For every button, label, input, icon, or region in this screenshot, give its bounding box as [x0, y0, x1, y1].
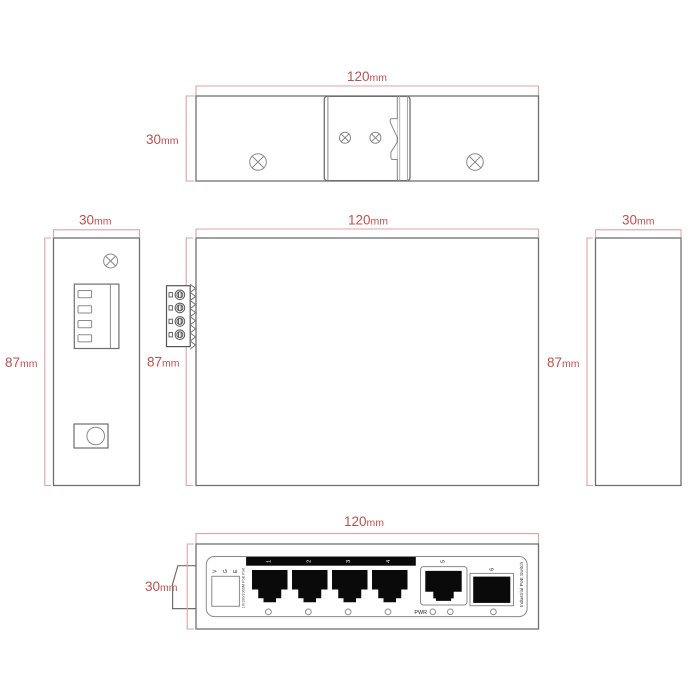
svg-text:30mm: 30mm [622, 213, 655, 228]
svg-text:6: 6 [490, 568, 496, 571]
svg-text:4: 4 [386, 560, 392, 563]
svg-text:G: G [223, 569, 229, 573]
svg-text:3: 3 [346, 560, 352, 563]
svg-text:120mm: 120mm [348, 213, 388, 228]
svg-text:2: 2 [306, 560, 312, 563]
svg-text:5: 5 [441, 560, 447, 563]
svg-text:30mm: 30mm [145, 579, 178, 594]
svg-text:PWR: PWR [414, 610, 427, 616]
svg-text:87mm: 87mm [147, 355, 180, 370]
svg-text:30mm: 30mm [146, 132, 179, 147]
svg-text:10/100/1000M PoE Port: 10/100/1000M PoE Port [242, 567, 246, 608]
svg-text:87mm: 87mm [547, 355, 580, 370]
svg-text:1: 1 [266, 560, 272, 563]
svg-text:30mm: 30mm [79, 213, 112, 228]
svg-text:120mm: 120mm [347, 69, 387, 84]
svg-text:Industrial PoE Switch: Industrial PoE Switch [519, 562, 525, 608]
svg-text:87mm: 87mm [5, 355, 38, 370]
svg-text:120mm: 120mm [344, 514, 384, 529]
